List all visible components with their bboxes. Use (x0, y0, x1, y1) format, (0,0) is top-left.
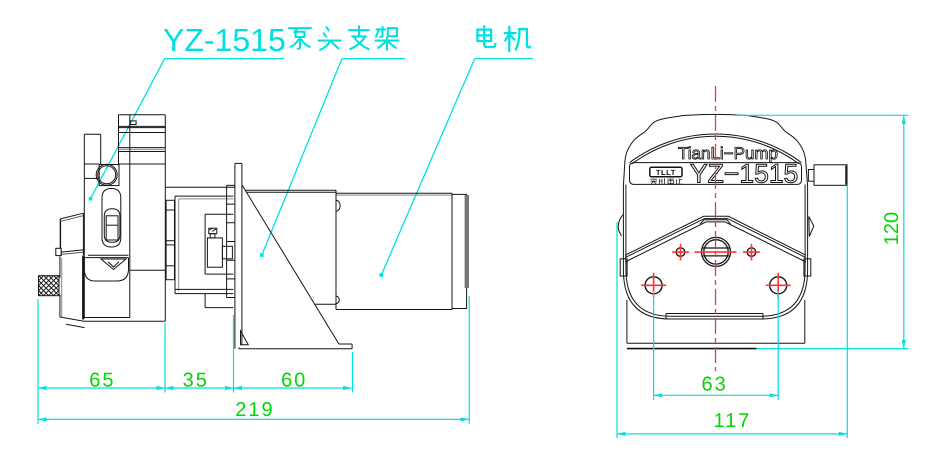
svg-text:YZ-1515: YZ-1515 (163, 22, 286, 58)
svg-text:YZ−1515: YZ−1515 (690, 159, 798, 189)
svg-text:120: 120 (881, 212, 903, 245)
svg-text:117: 117 (714, 410, 752, 432)
svg-text:35: 35 (183, 370, 209, 392)
svg-text:60: 60 (281, 370, 307, 392)
svg-text:65: 65 (89, 370, 115, 392)
svg-text:63: 63 (701, 374, 727, 396)
svg-text:219: 219 (235, 399, 274, 421)
svg-text:TLLT: TLLT (656, 168, 676, 177)
